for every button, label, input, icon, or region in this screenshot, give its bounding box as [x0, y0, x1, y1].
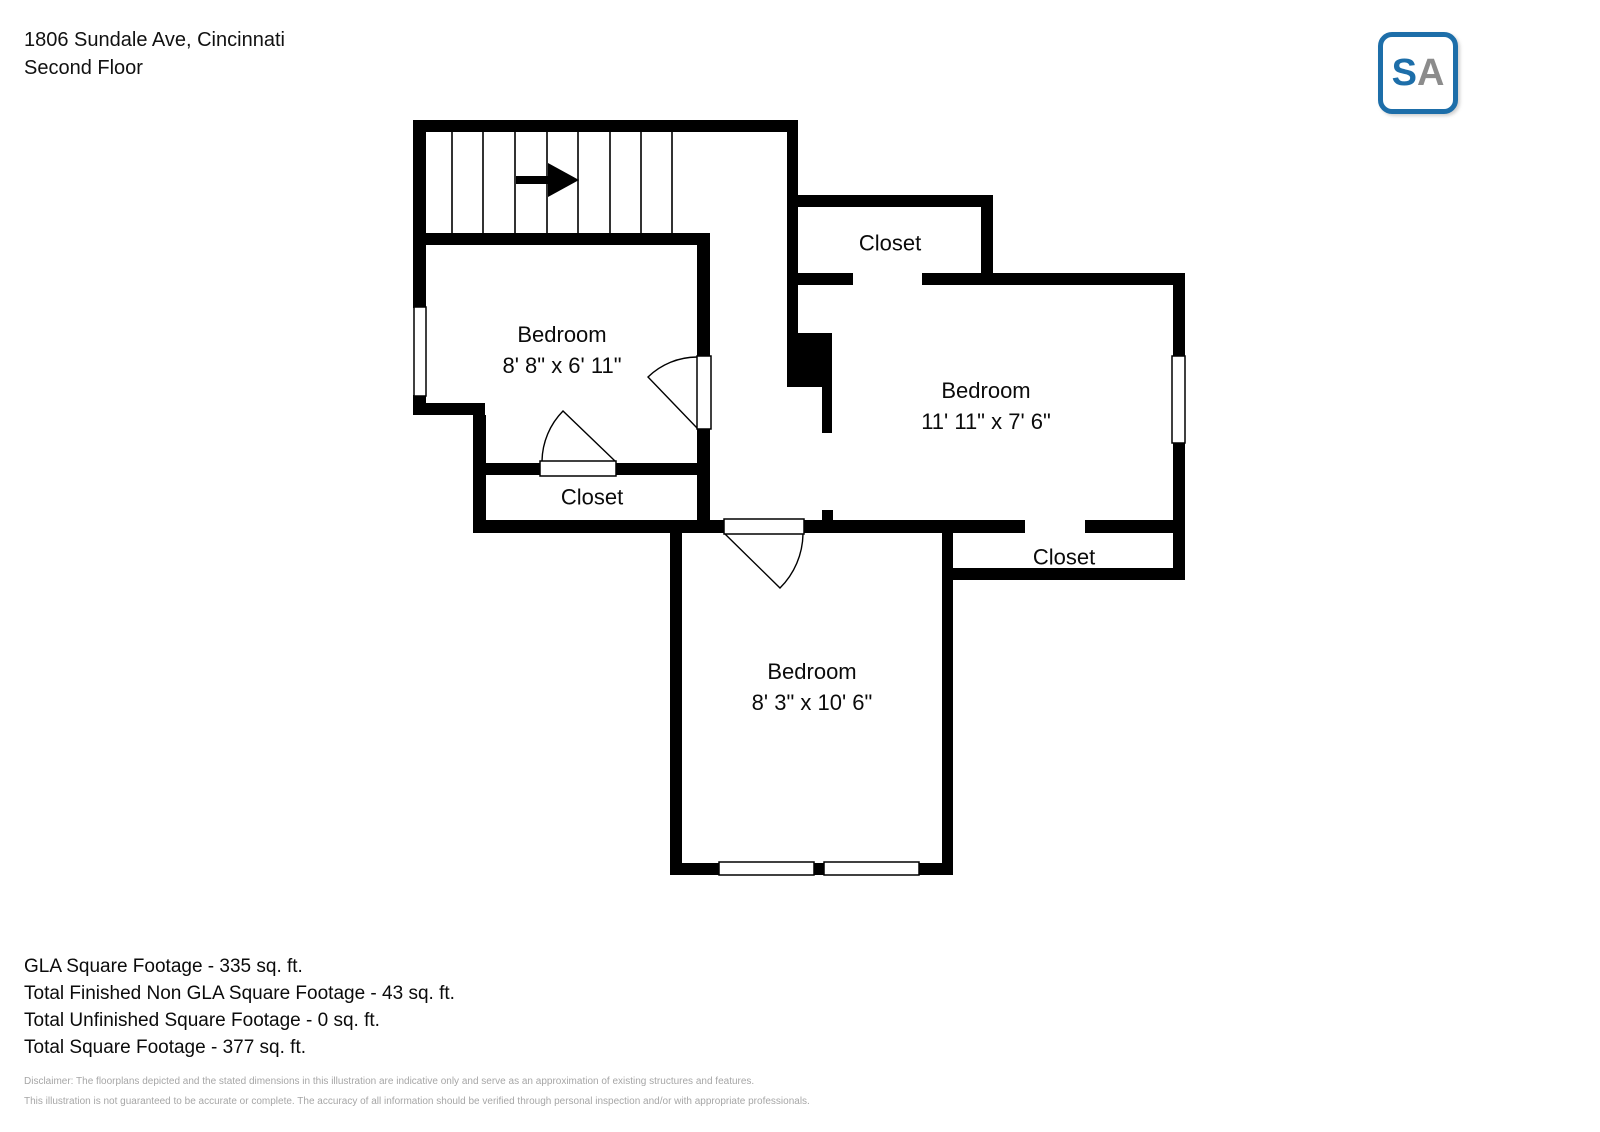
square-footage-summary: GLA Square Footage - 335 sq. ft. Total F… — [24, 953, 455, 1061]
room-dims: 11' 11" x 7' 6" — [921, 406, 1051, 437]
room-name: Closet — [561, 482, 623, 513]
window-left-bedroom — [414, 307, 426, 396]
total-line: Total Square Footage - 377 sq. ft. — [24, 1034, 455, 1061]
room-name: Closet — [1033, 542, 1095, 573]
room-name: Bedroom — [502, 319, 621, 350]
door-swing-bottom-bedroom — [725, 534, 803, 588]
label-closet-right: Closet — [1033, 542, 1095, 573]
window-right-bedroom — [1172, 356, 1185, 443]
room-dims: 8' 3" x 10' 6" — [752, 687, 873, 718]
disclaimer-line-1: Disclaimer: The floorplans depicted and … — [24, 1076, 754, 1087]
door-swing-left-closet — [542, 411, 615, 461]
floorplan-page: 1806 Sundale Ave, Cincinnati Second Floo… — [0, 0, 1600, 1132]
window-bottom-bedroom-1 — [719, 862, 814, 875]
door-swing-left-bedroom-east — [648, 357, 697, 428]
label-closet-top: Closet — [859, 228, 921, 259]
unfinished-line: Total Unfinished Square Footage - 0 sq. … — [24, 1007, 455, 1034]
label-bedroom-right: Bedroom 11' 11" x 7' 6" — [921, 375, 1051, 437]
door-bottom-bedroom — [724, 519, 804, 534]
gla-line: GLA Square Footage - 335 sq. ft. — [24, 953, 455, 980]
room-name: Bedroom — [752, 656, 873, 687]
door-left-bedroom-east — [697, 356, 711, 429]
room-name: Bedroom — [921, 375, 1051, 406]
non-gla-line: Total Finished Non GLA Square Footage - … — [24, 980, 455, 1007]
label-closet-left: Closet — [561, 482, 623, 513]
walls — [413, 120, 1185, 875]
label-bedroom-bottom: Bedroom 8' 3" x 10' 6" — [752, 656, 873, 718]
label-bedroom-left: Bedroom 8' 8" x 6' 11" — [502, 319, 621, 381]
window-bottom-bedroom-2 — [824, 862, 919, 875]
room-name: Closet — [859, 228, 921, 259]
windows — [414, 307, 1185, 875]
room-dims: 8' 8" x 6' 11" — [502, 350, 621, 381]
door-left-closet — [540, 461, 616, 476]
disclaimer-line-2: This illustration is not guaranteed to b… — [24, 1096, 810, 1107]
